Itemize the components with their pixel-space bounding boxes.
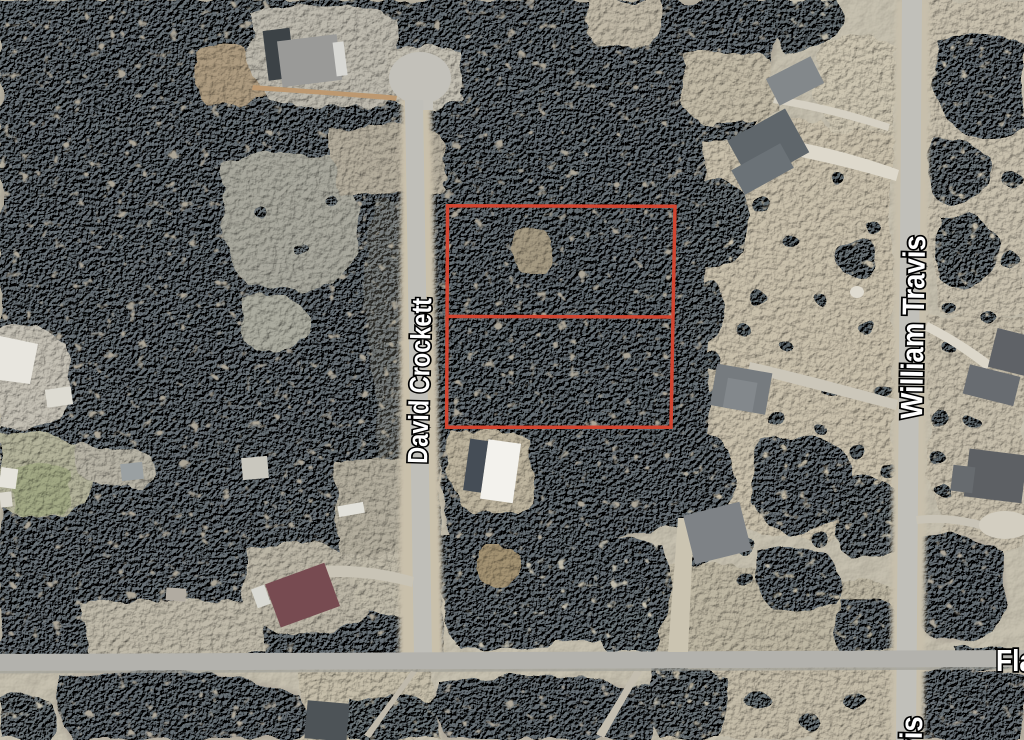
svg-text:Flag: Flag [996,644,1024,678]
svg-text:William Travis: William Travis [895,235,933,419]
svg-text:William Travis: William Travis [892,716,930,740]
svg-text:David Crockett: David Crockett [403,297,438,464]
